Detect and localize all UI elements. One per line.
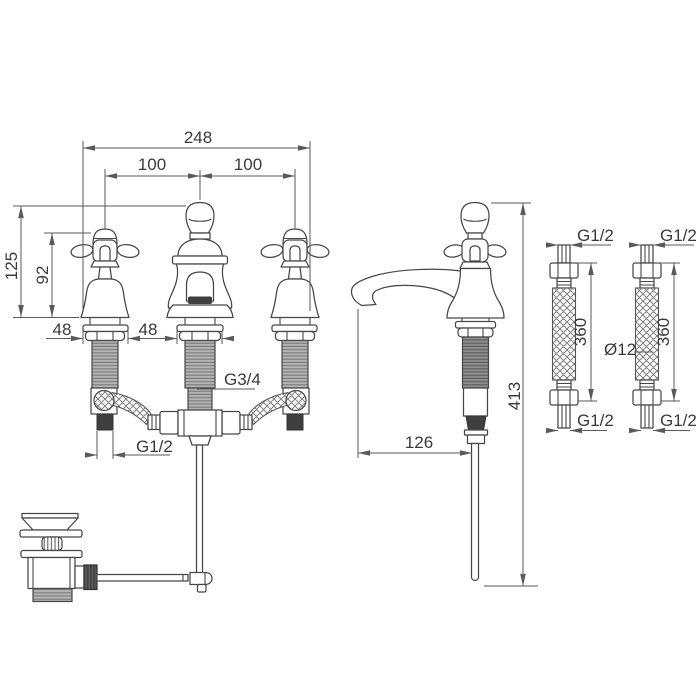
linkage-rod: [97, 575, 188, 582]
body-block: [178, 410, 222, 436]
dim-overall-height: 413: [505, 382, 524, 410]
hose-nut-bottom: [550, 390, 578, 405]
dim-height-125: 125: [2, 252, 21, 280]
valve-right: [249, 229, 330, 430]
backnut: [86, 332, 125, 341]
dim-overall-width: 248: [184, 128, 212, 147]
label-hose-thread-top-right: G1/2: [660, 226, 697, 245]
dim-base-48-left: 48: [53, 320, 72, 339]
label-hose-thread-bottom-right: G1/2: [660, 411, 697, 430]
compression-nut-left: [160, 412, 178, 435]
label-spout-thread: G3/4: [224, 370, 261, 389]
valve-bell-base: [81, 279, 129, 318]
spout-shank-lower: [188, 388, 212, 410]
popup-knob-side: [461, 203, 489, 234]
waste-tail-thread: [33, 589, 72, 602]
dim-height-92: 92: [33, 266, 52, 285]
inlet-tail: [97, 414, 113, 430]
dim-spacing-right: 100: [234, 155, 262, 174]
dim-hose-diameter: Ø12: [604, 340, 636, 359]
label-hose-thread-top-left: G1/2: [577, 226, 614, 245]
handle-arm-left: [70, 243, 94, 259]
popup-knob: [186, 203, 214, 234]
threaded-shank-side: [463, 337, 489, 388]
dim-spacing-left: 100: [138, 155, 166, 174]
deck-washer: [83, 325, 128, 332]
linkage-clevis: [190, 573, 212, 585]
label-valve-thread: G1/2: [136, 437, 173, 456]
elbow-nut: [94, 391, 114, 411]
label-hose-thread-bottom-left: G1/2: [577, 411, 614, 430]
adjuster-nut-side: [466, 416, 486, 430]
compression-nut-right: [222, 412, 240, 435]
waste-flange: [22, 518, 78, 530]
threaded-shank: [92, 341, 118, 389]
spout-side: [351, 269, 461, 305]
waste-grille: [42, 537, 62, 551]
front-view: [13, 141, 330, 602]
waste-body: [28, 558, 75, 589]
hose-nut-top: [550, 263, 578, 278]
pop-up-rod: [197, 445, 203, 574]
spout-threaded-shank: [185, 341, 215, 389]
tail-pipe-side: [472, 444, 479, 581]
handle-arm-right: [116, 243, 140, 259]
technical-drawing-page: 248 100 100 125 92 48 48 G3/4 G1/2 126 4…: [0, 0, 700, 700]
pop-up-waste: [20, 514, 212, 602]
mixer-body: [148, 410, 252, 574]
knurled-nut: [84, 565, 97, 590]
dim-hose-length-right: 360: [654, 318, 673, 346]
dim-base-48-center: 48: [139, 320, 158, 339]
dim-spout-projection: 126: [405, 433, 433, 452]
faucet-technical-drawing: 248 100 100 125 92 48 48 G3/4 G1/2 126 4…: [0, 0, 700, 700]
dim-hose-length-left: 360: [571, 318, 590, 346]
aerator: [188, 297, 212, 305]
spout-base: [167, 305, 233, 318]
